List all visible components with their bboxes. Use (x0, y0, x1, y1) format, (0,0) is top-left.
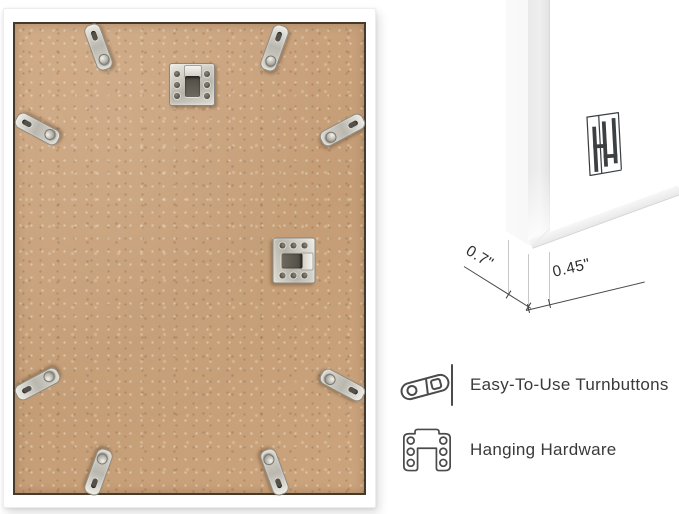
dimension-line-face-width (526, 282, 645, 311)
extension-line (508, 240, 509, 294)
turnbutton-screw (262, 452, 276, 466)
hanger-hole (280, 273, 286, 279)
turnbutton-screw (95, 452, 109, 466)
turnbutton-slot-hole (21, 119, 32, 128)
hanger-hole (204, 93, 210, 99)
hanger-notch (185, 76, 200, 97)
turnbutton-screw (263, 54, 277, 68)
feature-hanging-hardware: Hanging Hardware (398, 426, 617, 474)
hanger-hole (302, 243, 308, 249)
feature-label: Easy-To-Use Turnbuttons (470, 375, 669, 395)
hanger-hole (174, 82, 180, 88)
turnbutton-slot-hole (347, 386, 358, 395)
feature-label: Hanging Hardware (470, 440, 617, 460)
turnbutton-slot-hole (21, 386, 32, 395)
turnbutton-slot-hole (89, 30, 97, 41)
hanging-bracket (169, 63, 215, 106)
hanger-hole (280, 243, 286, 249)
product-image: 0.7" 0.45" Easy-To-Use Turnbuttons Hangi… (0, 0, 679, 514)
turnbutton-slot-hole (275, 478, 283, 489)
hanger-hole (174, 93, 180, 99)
turnbutton-screw (42, 127, 57, 142)
hanger-hole (204, 71, 210, 77)
turnbutton-slot-hole (90, 478, 98, 489)
hanger-hole (204, 82, 210, 88)
face-width-dimension-label: 0.45" (551, 256, 592, 282)
turnbutton-slot-hole (274, 31, 282, 42)
hanger-hole (291, 243, 297, 249)
brand-logo-icon (584, 112, 625, 178)
turnbutton-screw (322, 372, 337, 387)
turnbutton-icon (398, 363, 456, 407)
frame-corner-detail: 0.7" 0.45" (440, 0, 679, 330)
dimension-line-depth (464, 266, 532, 309)
feature-turnbuttons: Easy-To-Use Turnbuttons (398, 363, 669, 407)
hanger-hole (174, 71, 180, 77)
turnbutton-screw (41, 370, 56, 385)
extension-line (549, 252, 550, 304)
hanger-notch (282, 253, 303, 268)
hanging-bracket (273, 238, 316, 284)
turnbutton-screw (96, 52, 110, 66)
turnbutton-slot-hole (347, 119, 358, 128)
hanger-hole (302, 273, 308, 279)
turnbutton-screw (323, 129, 338, 144)
hanging-hardware-icon (398, 426, 456, 474)
frame-back-photo (3, 8, 376, 508)
hanger-hole (291, 273, 297, 279)
